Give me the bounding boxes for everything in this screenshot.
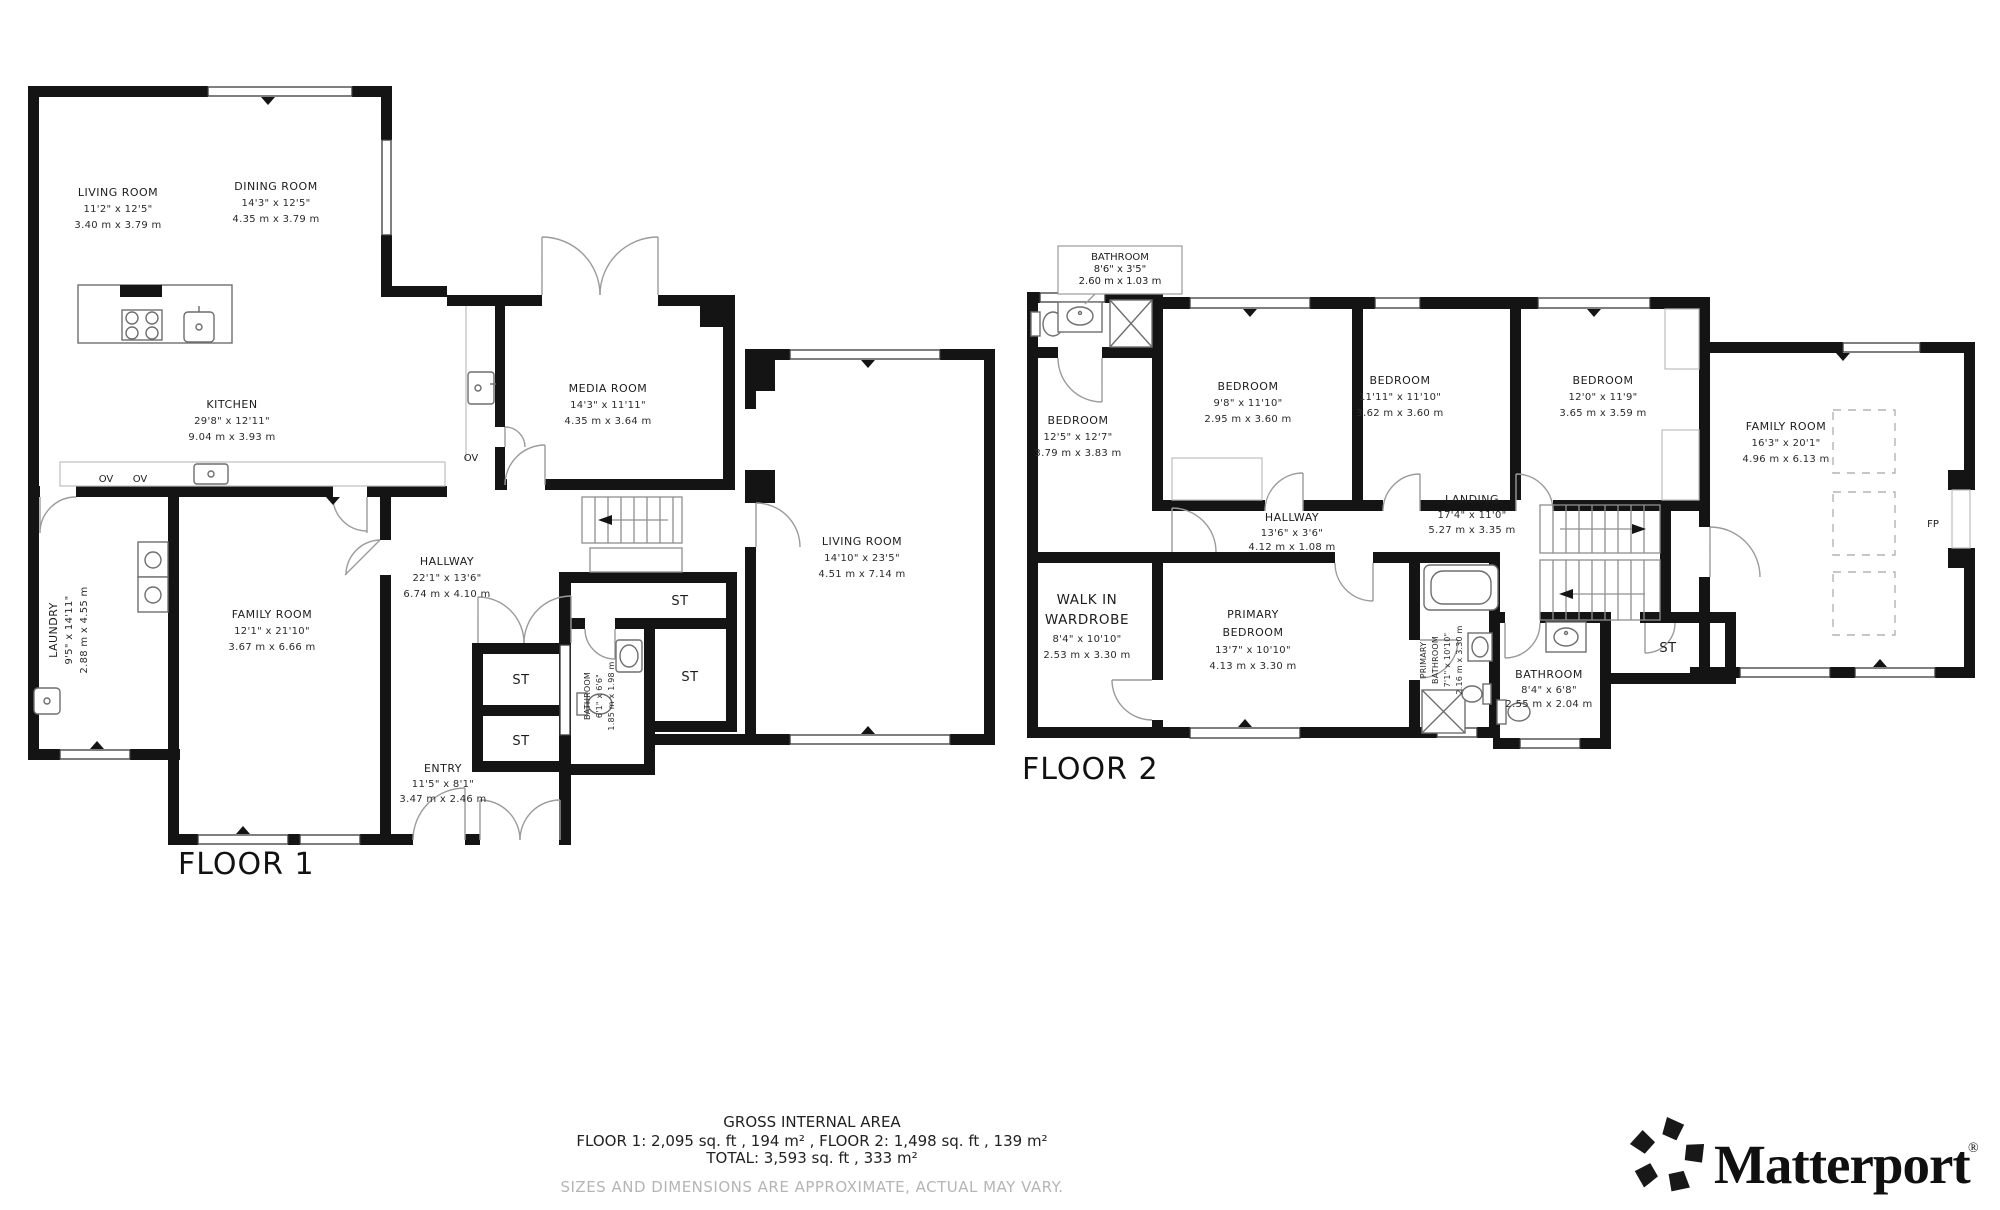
family-room-imperial: 12'1" x 21'10" [234,626,310,637]
floor2-plan: BATHROOM 8'6" x 3'5" 2.60 m x 1.03 m BED… [1022,246,1975,787]
floor1-walls [28,86,995,845]
shower-icon [1110,300,1152,347]
floorplan-canvas: LIVING ROOM 11'2" x 12'5" 3.40 m x 3.79 … [0,0,2000,1210]
bathroom2-imperial: 8'4" x 6'8" [1521,685,1577,696]
bedroom1-metric: 3.79 m x 3.83 m [1034,448,1121,459]
media-room-label: MEDIA ROOM [569,382,648,395]
bathroom1-imperial: 6'1" x 6'6" [595,674,604,718]
oven-tag-3: OV [464,453,479,464]
bedroom2-label: BEDROOM [1218,380,1279,393]
family-room-label: FAMILY ROOM [232,608,312,621]
hallway2-label: HALLWAY [1265,511,1319,524]
floor1-plan: LIVING ROOM 11'2" x 12'5" 3.40 m x 3.79 … [28,86,995,882]
walk-in-wardrobe-imperial: 8'4" x 10'10" [1052,634,1121,645]
bathroom-sink-icon [1468,633,1492,661]
footer-disclaimer: SIZES AND DIMENSIONS ARE APPROXIMATE, AC… [560,1178,1063,1196]
footer-total: TOTAL: 3,593 sq. ft , 333 m² [705,1149,917,1167]
living-room-imperial: 11'2" x 12'5" [83,204,152,215]
shower-icon [1422,690,1465,733]
matterport-wordmark: Matterport [1714,1134,1971,1195]
living-room-2-metric: 4.51 m x 7.14 m [818,569,905,580]
bathroom2-label: BATHROOM [1515,668,1583,681]
fireplace-tag: FP [1927,519,1939,530]
bedroom4-metric: 3.65 m x 3.59 m [1559,408,1646,419]
bathroom-sink-icon [616,640,642,672]
dining-room-label: DINING ROOM [234,180,317,193]
sink-icon [184,306,214,342]
family-room-skylights [1833,410,1895,635]
hallway-label: HALLWAY [420,555,474,568]
bedroom3-imperial: 11'11" x 11'10" [1359,392,1441,403]
bedroom3-label: BEDROOM [1370,374,1431,387]
bedroom4-label: BEDROOM [1573,374,1634,387]
entry-metric: 3.47 m x 2.46 m [399,794,486,805]
primary-bedroom-imperial: 13'7" x 10'10" [1215,645,1291,656]
primary-bathroom-metric: 2.16 m x 3.30 m [1455,625,1464,694]
laundry-label: LAUNDRY [47,602,60,658]
family-room2-imperial: 16'3" x 20'1" [1751,438,1820,449]
stove-icon [122,310,162,340]
direction-markers-floor2 [1238,309,1887,727]
kitchen-island [78,285,232,343]
bathroom-callout-imperial: 8'6" x 3'5" [1094,264,1146,275]
footer-title: GROSS INTERNAL AREA [723,1113,901,1131]
storage-tag-1: ST [671,594,688,609]
family-room2-metric: 4.96 m x 6.13 m [1742,454,1829,465]
storage-tag-4: ST [512,734,529,749]
footer: GROSS INTERNAL AREA FLOOR 1: 2,095 sq. f… [560,1113,1063,1196]
bathroom1-label: BATHROOM [583,672,592,720]
walk-in-wardrobe-metric: 2.53 m x 3.30 m [1043,650,1130,661]
matterport-icon [1628,1117,1709,1198]
hallway-imperial: 22'1" x 13'6" [412,573,481,584]
matterport-logo: Matterport ® [1628,1117,1979,1198]
bedroom2-imperial: 9'8" x 11'10" [1213,398,1282,409]
bedroom1-imperial: 12'5" x 12'7" [1043,432,1112,443]
kitchen-imperial: 29'8" x 12'11" [194,416,270,427]
oven-tag-2: OV [133,474,148,485]
entry-imperial: 11'5" x 8'1" [412,779,474,790]
hallway2-imperial: 13'6" x 3'6" [1261,528,1323,539]
bathroom-callout-metric: 2.60 m x 1.03 m [1079,276,1162,287]
media-room-metric: 4.35 m x 3.64 m [564,416,651,427]
footer-areas: FLOOR 1: 2,095 sq. ft , 194 m² , FLOOR 2… [576,1132,1047,1150]
entry-label: ENTRY [424,762,462,775]
bedroom3-metric: 3.62 m x 3.60 m [1356,408,1443,419]
living-room-2-label: LIVING ROOM [822,535,902,548]
walk-in-wardrobe-label-2: WARDROBE [1045,612,1129,628]
kitchen-metric: 9.04 m x 3.93 m [188,432,275,443]
floor2-title: FLOOR 2 [1022,752,1159,787]
bathroom2-metric: 2.55 m x 2.04 m [1505,699,1592,710]
landing-label: LANDING [1445,493,1499,506]
living-room-metric: 3.40 m x 3.79 m [74,220,161,231]
living-room-label: LIVING ROOM [78,186,158,199]
laundry-imperial: 9'5" x 14'11" [64,595,75,664]
floorplan-page: LIVING ROOM 11'2" x 12'5" 3.40 m x 3.79 … [0,0,2000,1210]
storage-tag-floor2: ST [1659,641,1676,656]
family-room2-label: FAMILY ROOM [1746,420,1826,433]
landing-metric: 5.27 m x 3.35 m [1428,525,1515,536]
walk-in-wardrobe-label-1: WALK IN [1057,592,1118,608]
bathtub-icon [1424,565,1498,610]
bathroom1-metric: 1.85 m x 1.98 m [607,661,616,730]
registered-mark: ® [1968,1141,1979,1156]
laundry-sink-icon [34,688,60,714]
bathroom-sink-icon [1546,622,1586,652]
storage-tag-3: ST [512,673,529,688]
toilet-icon [1462,684,1491,704]
oven-icon [468,372,496,404]
storage-tag-2: ST [681,670,698,685]
bathroom-callout-label: BATHROOM [1091,252,1149,263]
hallway-metric: 6.74 m x 4.10 m [403,589,490,600]
bedroom4-imperial: 12'0" x 11'9" [1568,392,1637,403]
bathroom-top-fixtures [1031,300,1152,347]
primary-bathroom-imperial: 7'1" x 10'10" [1443,633,1452,688]
floor1-stairs [582,497,682,572]
kitchen-label: KITCHEN [206,398,257,411]
primary-bathroom-label-2: BATHROOM [1431,636,1440,684]
dining-room-metric: 4.35 m x 3.79 m [232,214,319,225]
primary-bedroom-label-1: PRIMARY [1227,608,1279,621]
family-room-metric: 3.67 m x 6.66 m [228,642,315,653]
primary-bedroom-metric: 4.13 m x 3.30 m [1209,661,1296,672]
bedroom1-label: BEDROOM [1048,414,1109,427]
hallway2-metric: 4.12 m x 1.08 m [1248,542,1335,553]
vanity-sink-icon [1058,302,1102,332]
media-room-imperial: 14'3" x 11'11" [570,400,646,411]
dining-room-imperial: 14'3" x 12'5" [241,198,310,209]
floor1-title: FLOOR 1 [178,847,315,882]
laundry-metric: 2.88 m x 4.55 m [79,586,90,673]
floor2-stairs [1540,505,1660,620]
primary-bedroom-label-2: BEDROOM [1223,626,1284,639]
living-room-2-imperial: 14'10" x 23'5" [824,553,900,564]
oven-tag-1: OV [99,474,114,485]
landing-imperial: 17'4" x 11'0" [1437,510,1506,521]
bedroom2-metric: 2.95 m x 3.60 m [1204,414,1291,425]
primary-bathroom-label-1: PRIMARY [1419,642,1428,678]
